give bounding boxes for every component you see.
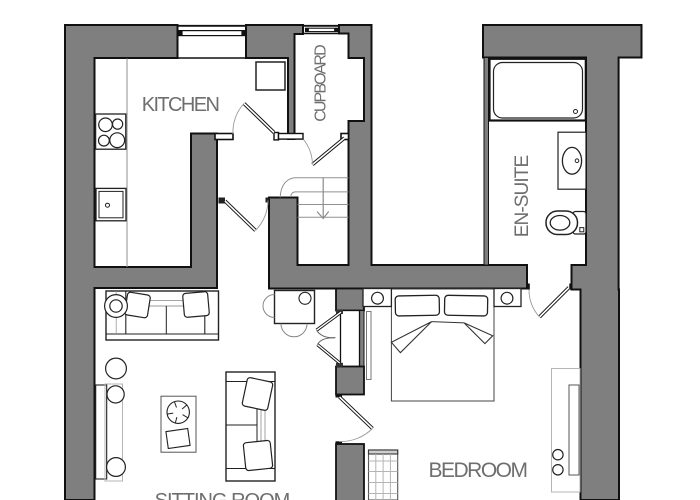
svg-text:BEDROOM: BEDROOM	[428, 459, 526, 482]
svg-text:CUPBOARD: CUPBOARD	[313, 45, 330, 122]
svg-text:SITTING ROOM: SITTING ROOM	[155, 490, 290, 500]
svg-text:KITCHEN: KITCHEN	[142, 94, 219, 116]
svg-text:EN-SUITE: EN-SUITE	[512, 156, 533, 238]
